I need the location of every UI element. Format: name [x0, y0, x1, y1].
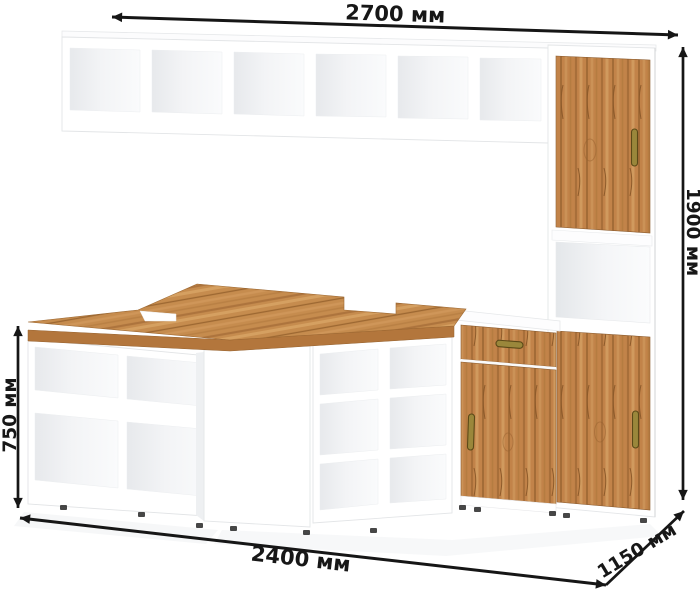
mid-unit-cubby [320, 399, 378, 455]
shelf-cubby-1 [70, 48, 140, 112]
left-unit-cubby-bl [35, 413, 118, 488]
mid-unit-cubby [390, 394, 446, 449]
cabinet-door-handle [467, 414, 474, 450]
shelf-cubby-4 [316, 54, 386, 117]
mid-unit-cubby [390, 454, 446, 503]
furniture-dimension-diagram: 2700 мм 1900 мм 750 мм 2400 мм 1150 мм [0, 0, 700, 592]
shelf-cubby-6 [480, 58, 541, 121]
drawer-cabinet [456, 310, 560, 513]
tall-cabinet [548, 45, 655, 517]
left-cubby-unit [28, 339, 220, 517]
diagram-canvas: 2700 мм 1900 мм 750 мм 2400 мм 1150 мм [0, 0, 700, 592]
middle-right-cubby-unit [313, 334, 452, 523]
mid-unit-cubby [320, 459, 378, 510]
dimension-label-top-width: 2700 мм [345, 0, 446, 27]
middle-panel-side [196, 352, 204, 521]
mid-unit-cubby [320, 349, 378, 395]
left-unit-cubby-tl [35, 347, 118, 398]
dimension-label-left-height: 750 мм [0, 377, 21, 452]
middle-panel-front [204, 345, 310, 527]
drawer-handle [496, 340, 523, 349]
shelf-cubby-2 [152, 50, 222, 114]
dimension-label-right-height: 1900 мм [682, 188, 700, 276]
upper-door-handle [632, 129, 638, 166]
mid-unit-cubby [390, 344, 446, 389]
shelf-cubby-3 [234, 52, 304, 116]
lower-door-handle [633, 411, 639, 448]
open-niche [556, 242, 650, 323]
middle-cabinet-panel [196, 345, 310, 527]
shelf-cubby-5 [398, 56, 468, 119]
